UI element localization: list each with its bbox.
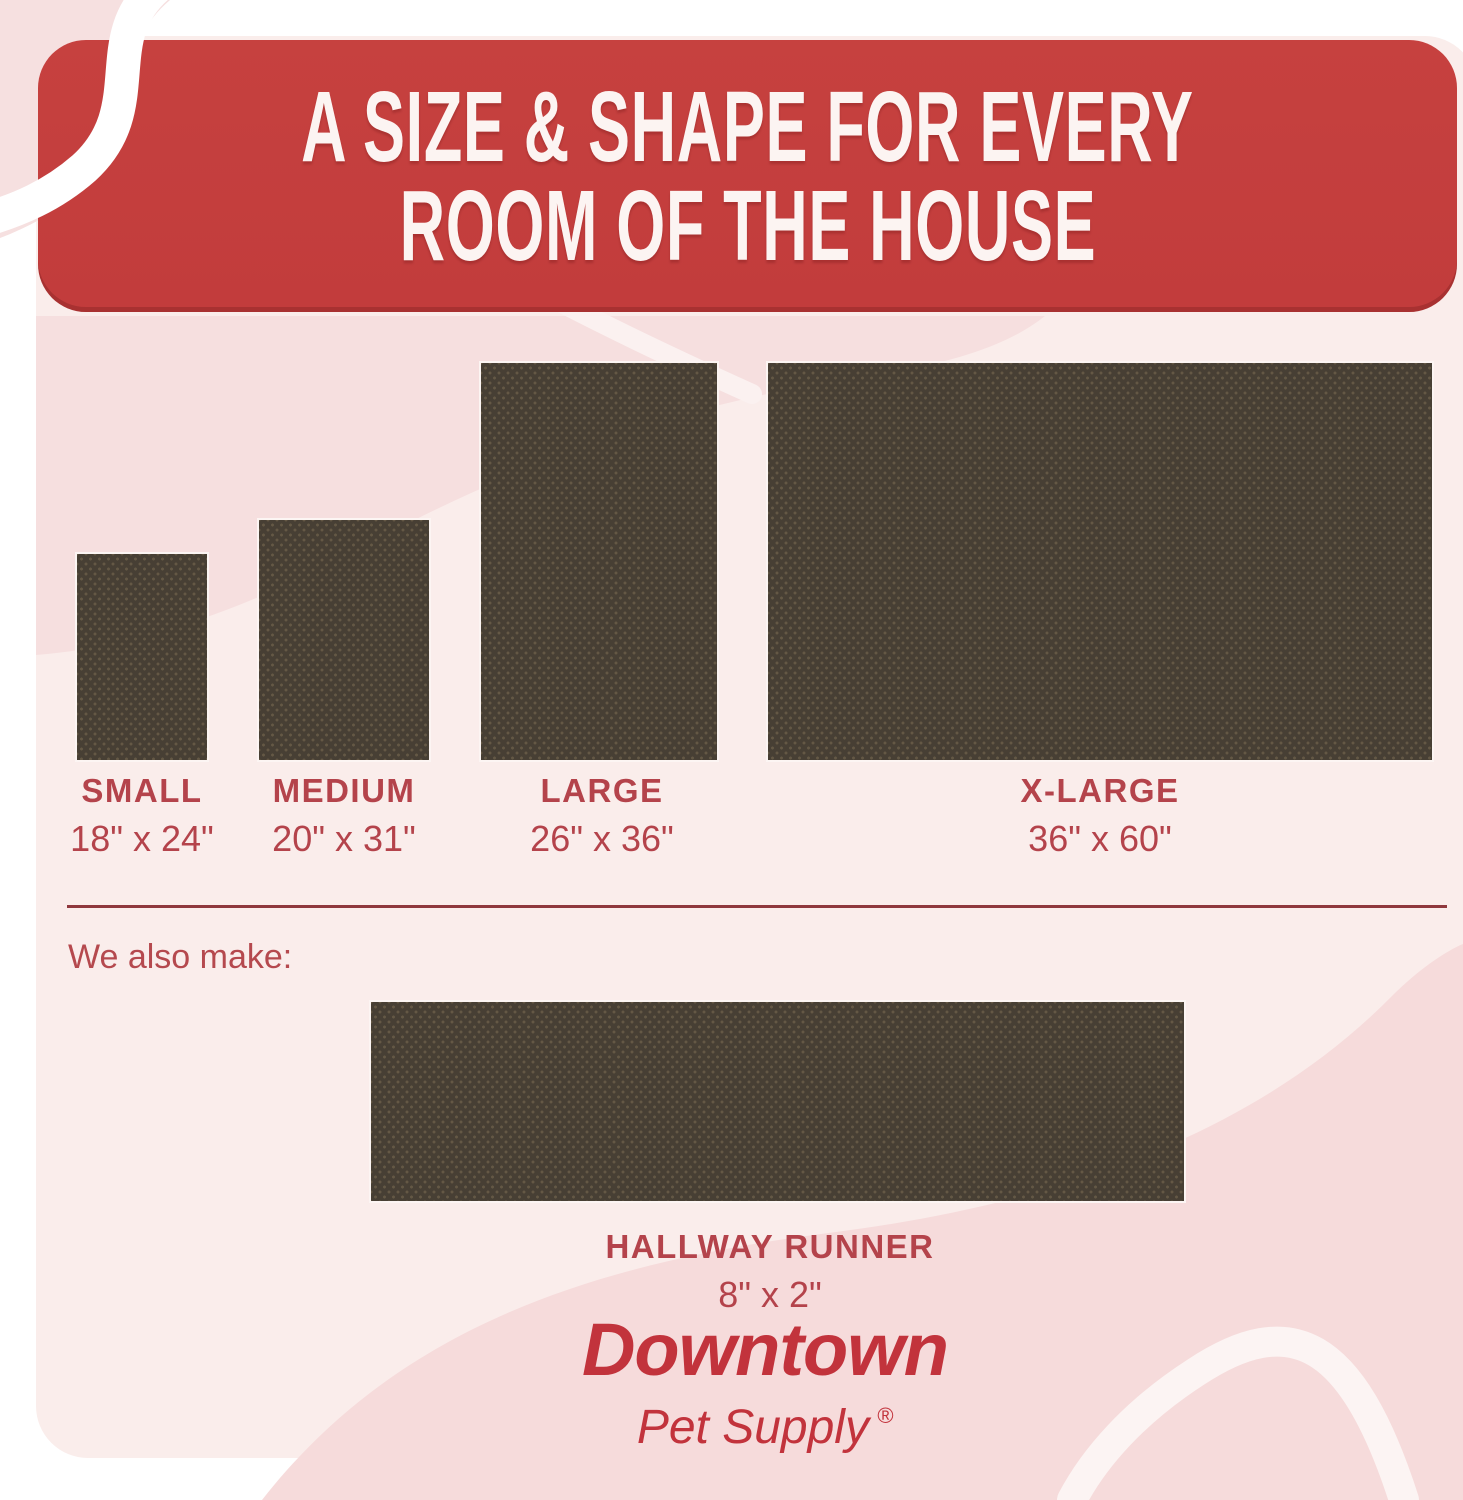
brand-subtitle: Pet Supply (637, 1401, 869, 1454)
size-dimensions-large: 26" x 36" (472, 818, 732, 860)
runner-name: HALLWAY RUNNER (570, 1228, 970, 1266)
also-make-text: We also make: (68, 938, 292, 977)
white-wave-decoration (1072, 1342, 1404, 1500)
size-name-medium: MEDIUM (214, 772, 474, 810)
mat-hallway-runner (369, 1000, 1186, 1203)
header-title-line-1: A SIZE & SHAPE FOR EVERY (301, 78, 1194, 177)
size-name-xlarge: X-LARGE (970, 772, 1230, 810)
mat-large (479, 361, 719, 762)
size-dimensions-xlarge: 36" x 60" (970, 818, 1230, 860)
size-label-large: LARGE 26" x 36" (472, 772, 732, 860)
brand-name: Downtown (465, 1312, 1065, 1388)
mat-xlarge (766, 361, 1434, 762)
brand-logo: Downtown Pet Supply® (465, 1312, 1065, 1456)
size-label-xlarge: X-LARGE 36" x 60" (970, 772, 1230, 860)
size-label-medium: MEDIUM 20" x 31" (214, 772, 474, 860)
size-name-large: LARGE (472, 772, 732, 810)
size-dimensions-medium: 20" x 31" (214, 818, 474, 860)
registered-trademark-symbol: ® (877, 1403, 893, 1428)
runner-label: HALLWAY RUNNER 8" x 2" (570, 1228, 970, 1316)
header-title-line-2: ROOM OF THE HOUSE (399, 177, 1096, 276)
brand-subtitle-line: Pet Supply® (465, 1388, 1065, 1456)
mat-medium (257, 518, 431, 762)
divider-line (67, 905, 1447, 908)
infographic-canvas: A SIZE & SHAPE FOR EVERY ROOM OF THE HOU… (0, 0, 1463, 1500)
mat-small (75, 552, 209, 762)
header-banner: A SIZE & SHAPE FOR EVERY ROOM OF THE HOU… (38, 40, 1457, 312)
